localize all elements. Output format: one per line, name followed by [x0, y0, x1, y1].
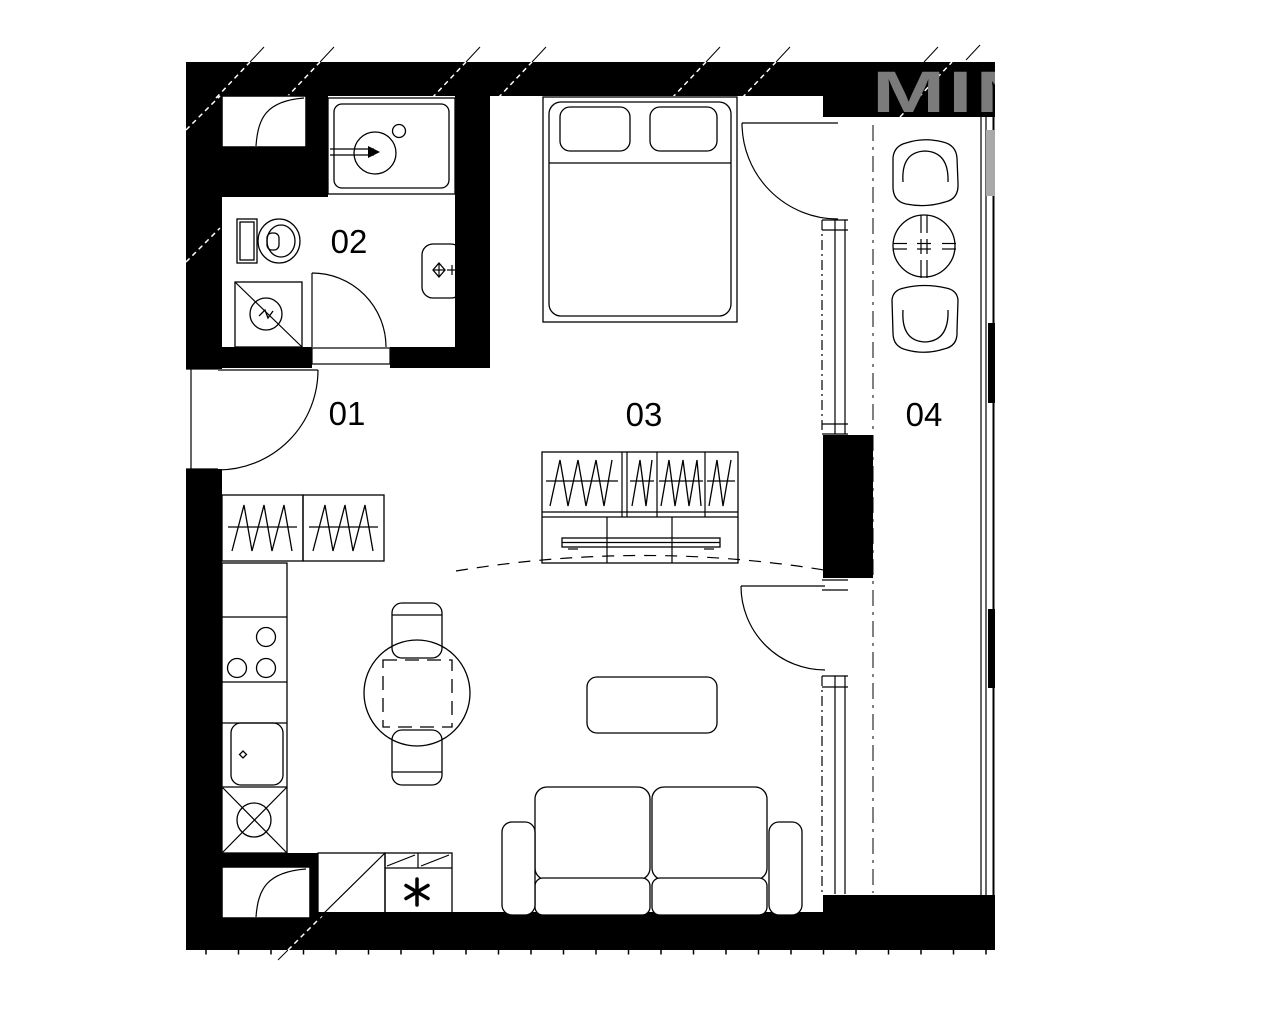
- sofa-seat: [535, 878, 650, 915]
- wall-bath-under-shaft: [222, 147, 328, 197]
- wall-shaft-jamb: [310, 867, 318, 919]
- sofa-back-cushion: [535, 787, 650, 880]
- wall-bottom-balcony: [823, 895, 995, 950]
- sofa-back-cushion: [652, 787, 767, 880]
- room-label-01: 01: [329, 395, 366, 432]
- room-label-02: 02: [331, 223, 368, 260]
- sofa-armrest: [769, 822, 802, 915]
- room-label-03: 03: [626, 396, 663, 433]
- scale-tick-marks: [205, 948, 991, 955]
- wall-left-lower: [186, 469, 222, 950]
- sofa-armrest: [502, 822, 535, 915]
- wall-bath-bottom-left: [222, 347, 312, 368]
- floor-plan-drawing: MIN MIN: [0, 0, 1280, 1024]
- wall-left-upper: [186, 62, 222, 369]
- wall-bath-bottom-right: [390, 347, 455, 368]
- duct-shaft-icon-bottom: [222, 867, 310, 918]
- room-label-04: 04: [906, 396, 943, 433]
- wall-window-pillar: [823, 435, 873, 578]
- wall-shaft-band: [218, 853, 318, 867]
- floor-plan-image: MIN MIN: [0, 0, 1280, 1024]
- watermark-fragment: [986, 130, 995, 196]
- duct-shaft-icon-top: [222, 96, 306, 147]
- sofa: [502, 787, 802, 915]
- wall-bath-right: [455, 96, 490, 368]
- sofa-seat: [652, 878, 767, 915]
